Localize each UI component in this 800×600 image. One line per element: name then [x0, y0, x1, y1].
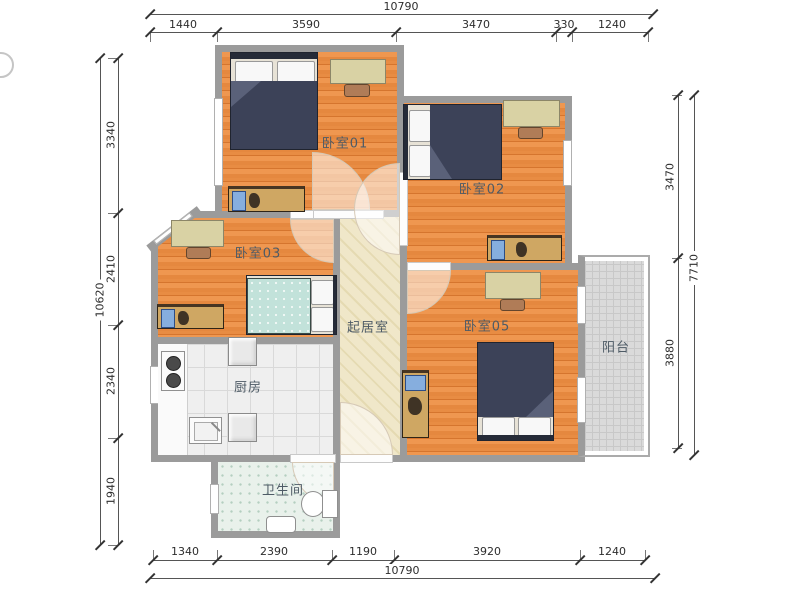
dim-extension — [556, 33, 557, 42]
dim-top-seg0: 1440 — [169, 18, 197, 31]
dim-extension — [572, 33, 573, 42]
dim-line-top-total — [150, 14, 653, 15]
dim-left-seg2: 2340 — [105, 367, 118, 395]
dim-top-seg2: 3470 — [462, 18, 490, 31]
dim-bottom-total: 10790 — [382, 564, 423, 577]
window — [210, 484, 219, 514]
dim-top-seg1: 3590 — [292, 18, 320, 31]
room-label-kitchen: 厨房 — [234, 377, 262, 396]
dim-line-bottom-total — [150, 578, 655, 579]
dim-extension — [396, 33, 397, 42]
dim-bottom-seg0: 1340 — [171, 545, 199, 558]
kitchen-appliance — [228, 413, 257, 442]
window — [214, 98, 223, 186]
chair-bedroom05 — [500, 299, 525, 311]
dresser-bedroom01 — [228, 186, 305, 212]
dresser-bedroom03 — [157, 304, 224, 329]
room-label-bedroom01: 卧室01 — [322, 133, 369, 152]
dim-left-seg1: 2410 — [105, 255, 118, 283]
dim-bottom-seg3: 3920 — [473, 545, 501, 558]
chair-bedroom01 — [344, 84, 370, 97]
desk-bedroom02 — [503, 100, 560, 127]
room-balcony — [578, 255, 650, 457]
dim-line-left-segments — [118, 58, 119, 545]
bed-bedroom05 — [477, 342, 554, 441]
dresser-bedroom05 — [402, 370, 429, 438]
dim-top-seg3: 330 — [554, 18, 575, 31]
logo-circle-icon — [0, 52, 14, 78]
dim-bottom-seg2: 1190 — [349, 545, 377, 558]
dim-left-seg3: 1940 — [105, 477, 118, 505]
desk-bedroom01 — [330, 59, 386, 84]
stove — [161, 351, 185, 391]
window — [563, 140, 572, 186]
chair-bedroom02 — [518, 127, 543, 139]
bed-bedroom02 — [403, 104, 502, 180]
kitchen-sink — [189, 417, 222, 444]
fridge — [228, 337, 257, 366]
chair-bedroom03 — [186, 247, 211, 259]
dim-left-total: 10620 — [94, 280, 107, 321]
dim-bottom-seg1: 2390 — [260, 545, 288, 558]
dim-extension — [217, 33, 218, 42]
toilet — [301, 490, 337, 517]
dim-line-top-segments — [150, 32, 648, 33]
dim-right-total: 7710 — [688, 251, 701, 285]
dim-top-total: 10790 — [381, 0, 422, 13]
door-opening — [399, 172, 408, 246]
room-label-balcony: 阳台 — [602, 337, 630, 356]
dim-right-seg1: 3880 — [664, 339, 677, 367]
desk-bedroom05 — [485, 272, 541, 299]
dim-right-seg0: 3470 — [664, 163, 677, 191]
dim-extension — [648, 33, 649, 42]
bed-bedroom01 — [230, 52, 318, 150]
room-label-bathroom: 卫生间 — [262, 480, 304, 499]
door-opening — [340, 454, 393, 463]
dim-bottom-seg4: 1240 — [598, 545, 626, 558]
window — [577, 377, 586, 423]
dim-line-right-segments — [678, 95, 679, 448]
room-label-bedroom02: 卧室02 — [459, 179, 506, 198]
floor-plan-canvas: 卧室01 卧室02 卧室03 卧室05 起居室 厨房 卫生间 阳台 10790 … — [0, 0, 800, 600]
desk-bedroom03 — [171, 220, 224, 247]
washbasin — [266, 516, 296, 533]
dim-line-bottom-segments — [153, 560, 645, 561]
room-label-living: 起居室 — [347, 317, 389, 336]
dim-left-seg0: 3340 — [105, 121, 118, 149]
room-label-bedroom05: 卧室05 — [464, 316, 511, 335]
room-label-bedroom03: 卧室03 — [235, 243, 282, 262]
dim-top-seg4: 1240 — [598, 18, 626, 31]
dim-extension — [150, 33, 151, 42]
bed-bedroom03 — [246, 275, 337, 335]
dresser-bedroom02 — [487, 235, 562, 261]
window — [577, 286, 586, 324]
